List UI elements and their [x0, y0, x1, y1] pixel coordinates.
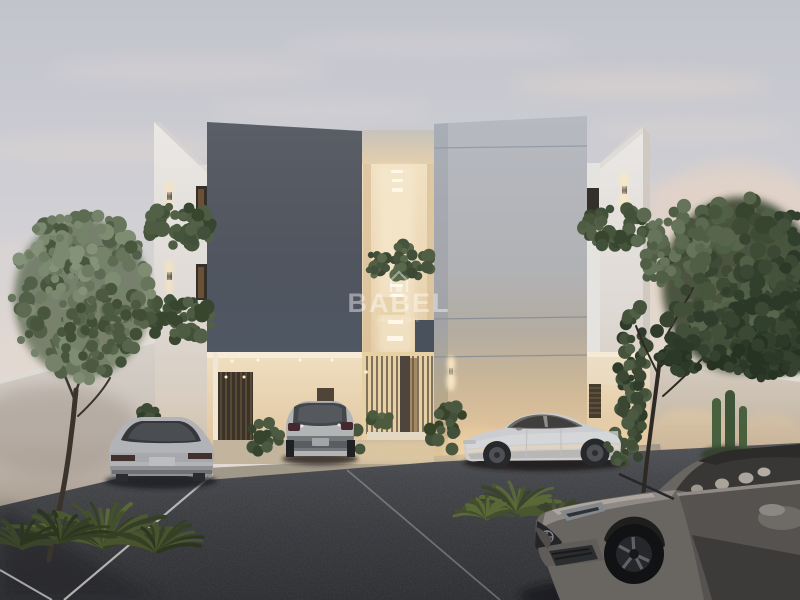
svg-text:REAL ESTATE: REAL ESTATE — [378, 318, 420, 324]
svg-text:BABEL: BABEL — [348, 288, 451, 318]
